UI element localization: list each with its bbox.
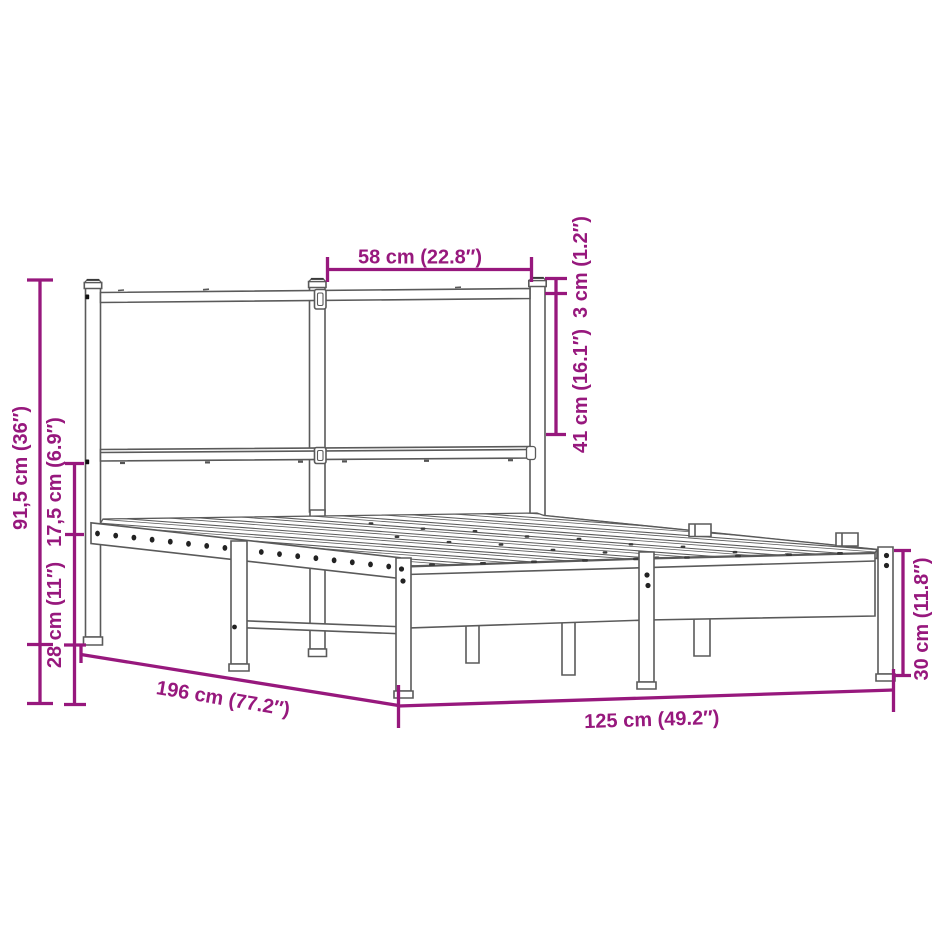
svg-text:28 cm (11″): 28 cm (11″) — [44, 562, 66, 668]
svg-text:125 cm (49.2″): 125 cm (49.2″) — [584, 707, 720, 733]
svg-text:30 cm (11.8″): 30 cm (11.8″) — [911, 558, 933, 681]
svg-text:58 cm (22.8″): 58 cm (22.8″) — [358, 247, 482, 269]
svg-text:41 cm (16.1″): 41 cm (16.1″) — [570, 329, 592, 453]
svg-text:91,5 cm (36″): 91,5 cm (36″) — [10, 406, 32, 530]
svg-text:3 cm (1.2″): 3 cm (1.2″) — [570, 216, 592, 318]
svg-text:17,5 cm (6.9″): 17,5 cm (6.9″) — [44, 417, 66, 547]
